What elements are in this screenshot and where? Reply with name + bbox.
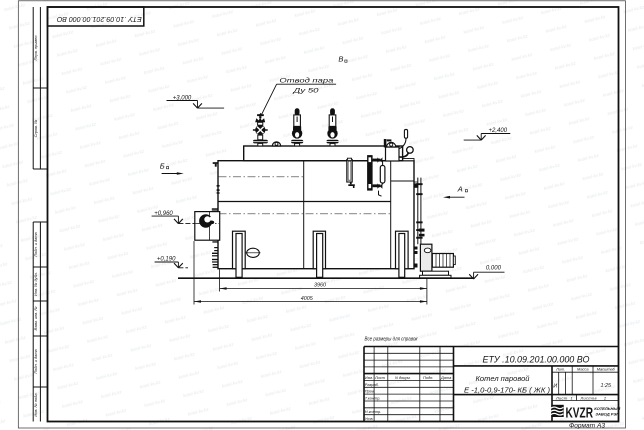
svg-text:4005: 4005	[301, 296, 314, 302]
svg-text:3960: 3960	[314, 283, 326, 289]
svg-text:ЗАВОД РЭП: ЗАВОД РЭП	[595, 412, 619, 417]
svg-text:Изм.: Изм.	[365, 375, 373, 380]
svg-text:ЕТУ .10.09.201.00.000 ВО: ЕТУ .10.09.201.00.000 ВО	[483, 354, 591, 365]
svg-text:Котел паровой: Котел паровой	[476, 375, 530, 383]
svg-text:+2,400: +2,400	[489, 128, 508, 134]
svg-text:Подп. и дата: Подп. и дата	[33, 231, 38, 256]
svg-text:Масса: Масса	[577, 367, 589, 372]
svg-text:1: 1	[571, 395, 573, 400]
svg-text:Утв.: Утв.	[365, 416, 374, 421]
svg-text:Подп. и дата: Подп. и дата	[33, 348, 38, 373]
svg-text:Формат А3: Формат А3	[569, 422, 605, 429]
svg-text:Взам. инв. №: Взам. инв. №	[33, 306, 38, 331]
svg-text:Разраб.: Разраб.	[365, 382, 379, 387]
svg-text:А: А	[457, 184, 463, 193]
svg-text:Все размеры для справок: Все размеры для справок	[365, 337, 418, 343]
svg-text:Справ. №: Справ. №	[33, 119, 38, 137]
svg-text:0,000: 0,000	[486, 266, 502, 272]
svg-text:Листов: Листов	[580, 395, 597, 400]
svg-text:N докум.: N докум.	[395, 375, 411, 380]
svg-text:Б: Б	[160, 162, 165, 171]
svg-text:Пров.: Пров.	[365, 389, 375, 394]
svg-text:Отвод пара: Отвод пара	[279, 77, 333, 85]
svg-text:KVZR: KVZR	[566, 405, 594, 421]
svg-text:В: В	[338, 55, 343, 64]
svg-text:Инв. № дубл.: Инв. № дубл.	[33, 272, 38, 296]
svg-text:Ду 50: Ду 50	[292, 88, 319, 95]
svg-text:Н.контр.: Н.контр.	[365, 409, 381, 414]
svg-text:Дата: Дата	[440, 375, 452, 380]
svg-text:Е -1,0-0,9-170- КБ ( ЖК ): Е -1,0-0,9-170- КБ ( ЖК )	[464, 387, 550, 394]
svg-text:И: И	[553, 384, 557, 390]
svg-text:+3,000: +3,000	[173, 95, 192, 101]
svg-text:ЕТУ .10.09.201.00.000 ВО: ЕТУ .10.09.201.00.000 ВО	[56, 15, 141, 24]
svg-text:Лит.: Лит.	[555, 367, 565, 372]
svg-text:+0,960: +0,960	[154, 211, 173, 217]
svg-text:Подп.: Подп.	[423, 375, 433, 380]
svg-text:Лист: Лист	[374, 375, 386, 380]
svg-text:Масштаб: Масштаб	[597, 367, 616, 372]
svg-text:КОТЕЛЬНЫЙ: КОТЕЛЬНЫЙ	[594, 406, 620, 411]
svg-text:1:25: 1:25	[601, 383, 612, 389]
svg-text:Перв. примен.: Перв. примен.	[33, 35, 38, 61]
svg-text:Т.контр.: Т.контр.	[365, 396, 381, 401]
svg-text:Лист: Лист	[555, 395, 568, 400]
svg-text:+0,190: +0,190	[157, 257, 176, 263]
svg-text:Инв. № подл.: Инв. № подл.	[33, 392, 38, 416]
